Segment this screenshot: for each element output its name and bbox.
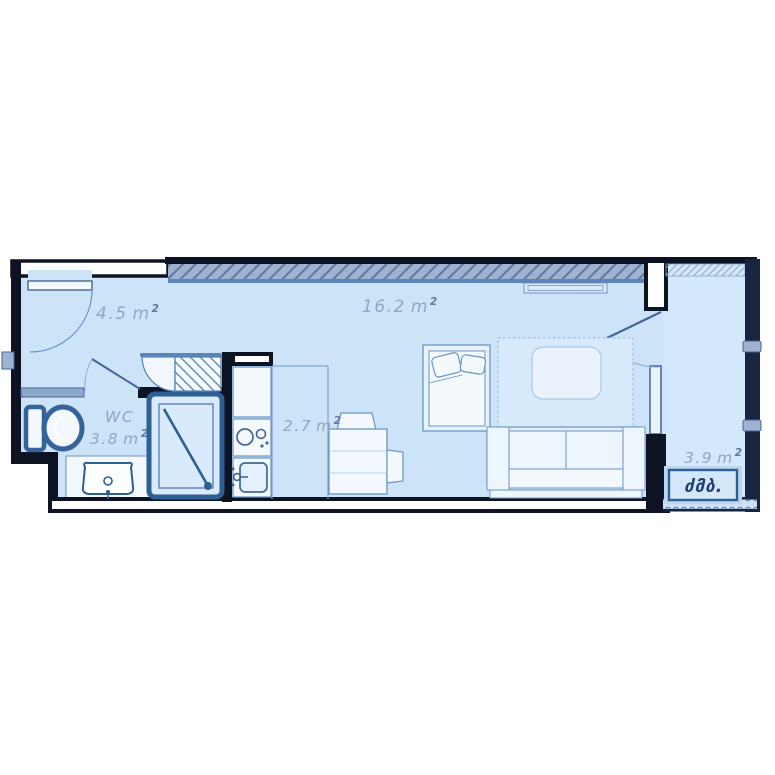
coffee-table	[532, 347, 601, 399]
kitchen-fixtures	[232, 367, 272, 497]
logo-text: ძმბ.	[684, 477, 723, 497]
room-label-balcony: 3.9m2	[684, 447, 742, 467]
room-label-living-room: 16.2m2	[362, 296, 437, 317]
chair	[337, 413, 376, 430]
desk-side-unit	[387, 450, 403, 483]
living-balcony-window	[650, 366, 661, 434]
room-label-kitchen: 2.7m2	[283, 415, 341, 435]
room-label-wc-name: WC	[105, 408, 134, 426]
kitchen-counter	[233, 367, 271, 417]
window-sash-tab-2	[743, 420, 761, 431]
window-sash-tab-1	[743, 341, 761, 352]
top-wall-line	[165, 257, 757, 264]
floor-plan: 4.5m2 16.2m2 WC 3.8m2 2.7m2 3.9m2 ძმბ.	[0, 0, 775, 775]
room-label-entry-hall: 4.5m2	[96, 303, 159, 324]
glazed-wall	[745, 259, 760, 512]
wc-partition	[21, 388, 84, 397]
toilet	[26, 407, 82, 450]
radiator	[524, 283, 607, 293]
bottom-wall	[50, 499, 668, 511]
balcony-top-band	[666, 264, 745, 276]
stove-burners	[233, 419, 271, 456]
desk	[329, 429, 387, 494]
step-wall-v	[48, 452, 58, 504]
shower-cabin	[149, 394, 222, 497]
kitchen-sink	[232, 458, 272, 497]
hatched-wall-edge	[168, 279, 662, 283]
pillow-right	[460, 354, 486, 375]
sofa-cushion	[566, 431, 623, 469]
wall-pier	[2, 352, 14, 369]
sofa-armrest-left	[487, 427, 509, 490]
sofa-front	[509, 469, 623, 488]
logo-plate: ძმბ.	[664, 466, 742, 504]
floor-plan-canvas: 4.5m2 16.2m2 WC 3.8m2 2.7m2 3.9m2 ძმბ.	[0, 0, 775, 775]
sofa-base	[490, 490, 642, 498]
kitchen-top-wall-core	[235, 356, 269, 362]
bed	[423, 345, 490, 431]
washbasin	[83, 463, 133, 499]
sofa	[487, 427, 645, 498]
hatched-wall	[168, 264, 662, 279]
sofa-armrest-right	[623, 427, 645, 490]
balcony-pier-top	[646, 261, 666, 309]
entry-opening	[28, 270, 92, 280]
sofa-cushion	[509, 431, 566, 469]
room-label-wc-area: 3.8m2	[90, 428, 148, 448]
